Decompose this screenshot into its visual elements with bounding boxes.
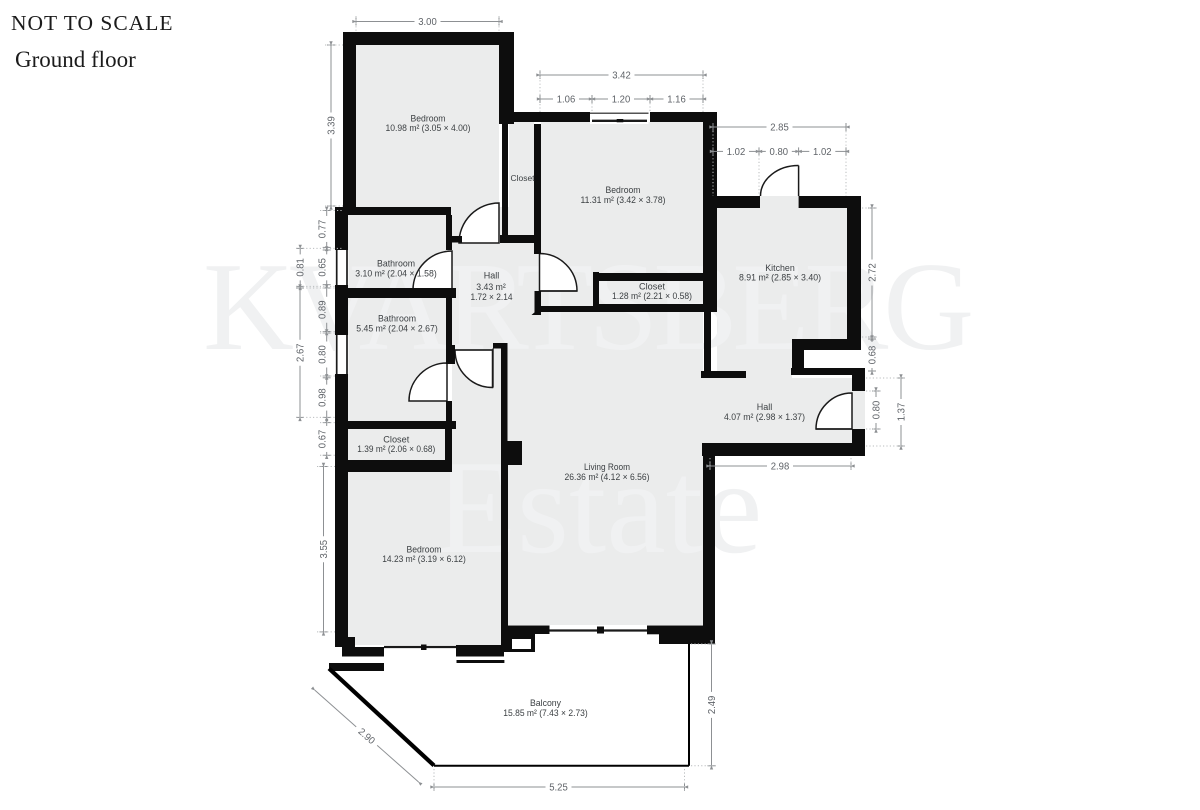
svg-text:1.06: 1.06 (557, 94, 576, 105)
svg-text:3.00: 3.00 (418, 17, 437, 28)
svg-text:0.80: 0.80 (871, 400, 882, 419)
svg-text:14.23 m² (3.19 × 6.12): 14.23 m² (3.19 × 6.12) (382, 554, 466, 564)
svg-text:3.10 m² (2.04 × 1.58): 3.10 m² (2.04 × 1.58) (355, 268, 437, 278)
svg-text:1.16: 1.16 (667, 94, 686, 105)
svg-text:Living Room: Living Room (584, 462, 630, 472)
svg-text:2.72: 2.72 (867, 263, 878, 282)
svg-text:2.67: 2.67 (295, 343, 306, 362)
svg-text:10.98 m² (3.05 × 4.00): 10.98 m² (3.05 × 4.00) (386, 123, 471, 133)
svg-text:1.02: 1.02 (727, 147, 746, 158)
svg-text:8.91 m² (2.85 × 3.40): 8.91 m² (2.85 × 3.40) (739, 273, 821, 283)
svg-text:0.89: 0.89 (318, 301, 329, 320)
svg-text:2.49: 2.49 (707, 696, 718, 715)
svg-text:Hall: Hall (484, 271, 500, 281)
svg-text:0.68: 0.68 (867, 345, 878, 364)
svg-text:2.98: 2.98 (771, 461, 790, 472)
svg-text:0.67: 0.67 (318, 430, 329, 449)
svg-text:0.81: 0.81 (296, 258, 307, 277)
svg-text:5.25: 5.25 (549, 782, 568, 793)
svg-text:Closet: Closet (639, 282, 665, 292)
svg-text:3.43 m²: 3.43 m² (476, 282, 506, 292)
svg-text:Ground floor: Ground floor (15, 47, 136, 72)
svg-text:Closet: Closet (383, 435, 409, 445)
svg-text:0.77: 0.77 (318, 220, 329, 239)
svg-text:0.80: 0.80 (318, 345, 329, 364)
svg-text:11.31 m² (3.42 × 3.78): 11.31 m² (3.42 × 3.78) (581, 195, 666, 205)
svg-text:3.42: 3.42 (612, 70, 631, 81)
svg-text:3.39: 3.39 (326, 116, 337, 135)
svg-text:26.36 m² (4.12 × 6.56): 26.36 m² (4.12 × 6.56) (565, 472, 650, 482)
svg-text:Closet: Closet (511, 173, 536, 183)
svg-text:0.80: 0.80 (770, 147, 789, 158)
svg-text:2.85: 2.85 (770, 122, 789, 133)
svg-text:1.20: 1.20 (612, 94, 631, 105)
svg-text:15.85 m² (7.43 × 2.73): 15.85 m² (7.43 × 2.73) (503, 708, 588, 718)
svg-text:Bedroom: Bedroom (411, 114, 446, 124)
svg-text:Bedroom: Bedroom (407, 544, 442, 554)
svg-text:1.02: 1.02 (813, 147, 832, 158)
svg-text:4.07 m² (2.98 × 1.37): 4.07 m² (2.98 × 1.37) (724, 412, 805, 422)
svg-text:Bathroom: Bathroom (377, 259, 415, 269)
svg-text:1.28 m² (2.21 × 0.58): 1.28 m² (2.21 × 0.58) (612, 291, 692, 301)
svg-text:1.39 m² (2.06 × 0.68): 1.39 m² (2.06 × 0.68) (357, 444, 435, 454)
svg-text:Balcony: Balcony (530, 698, 561, 708)
svg-text:Kitchen: Kitchen (765, 263, 795, 273)
svg-text:5.45 m² (2.04 × 2.67): 5.45 m² (2.04 × 2.67) (356, 323, 438, 333)
svg-text:Bathroom: Bathroom (378, 314, 416, 324)
svg-text:0.98: 0.98 (318, 388, 329, 407)
svg-text:Hall: Hall (757, 402, 773, 412)
svg-text:Bedroom: Bedroom (606, 185, 641, 195)
svg-text:1.72 × 2.14: 1.72 × 2.14 (471, 292, 513, 302)
svg-text:3.55: 3.55 (319, 539, 330, 558)
svg-text:1.37: 1.37 (896, 403, 907, 422)
svg-text:0.65: 0.65 (318, 258, 329, 277)
svg-text:NOT TO SCALE: NOT TO SCALE (11, 11, 174, 35)
